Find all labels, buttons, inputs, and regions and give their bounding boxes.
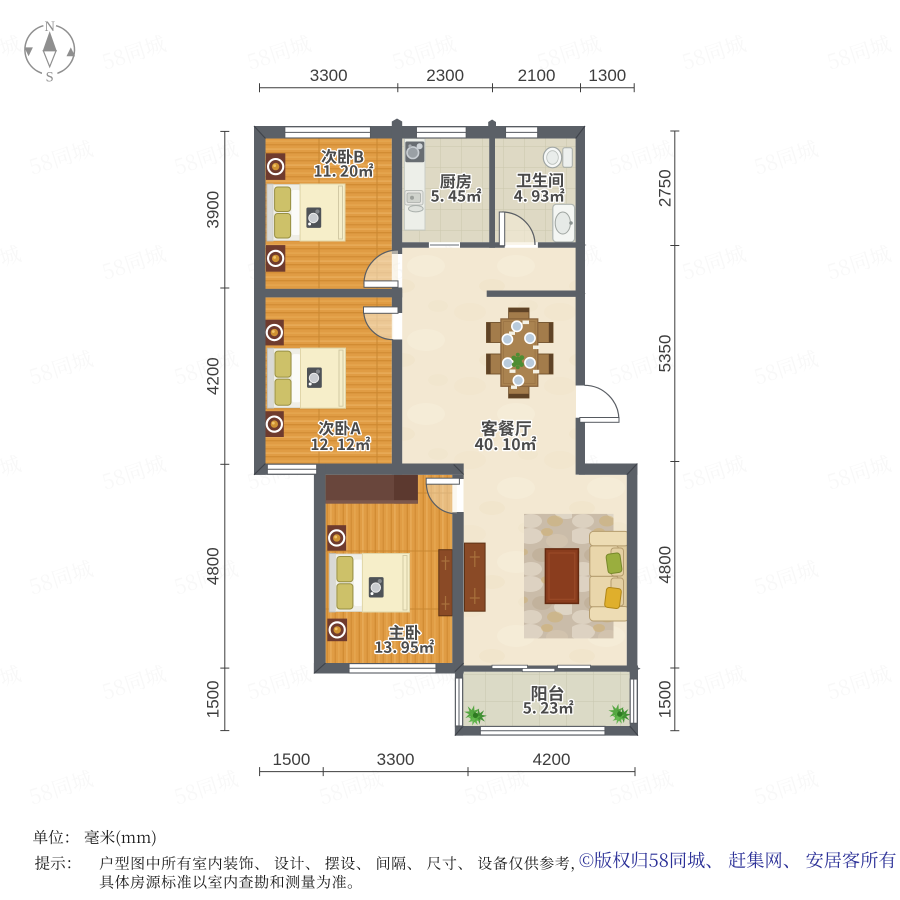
svg-text:3900: 3900 bbox=[203, 191, 222, 229]
svg-text:4200: 4200 bbox=[203, 357, 222, 395]
svg-text:2100: 2100 bbox=[518, 66, 556, 85]
svg-text:5350: 5350 bbox=[656, 335, 675, 373]
svg-text:3300: 3300 bbox=[310, 66, 348, 85]
svg-text:1500: 1500 bbox=[203, 680, 222, 718]
svg-text:1500: 1500 bbox=[656, 680, 675, 718]
svg-text:4200: 4200 bbox=[533, 750, 571, 769]
svg-text:3300: 3300 bbox=[377, 750, 415, 769]
svg-text:1500: 1500 bbox=[272, 750, 310, 769]
svg-text:1300: 1300 bbox=[588, 66, 626, 85]
svg-text:4800: 4800 bbox=[203, 547, 222, 585]
svg-text:S: S bbox=[46, 70, 54, 86]
svg-text:4800: 4800 bbox=[656, 546, 675, 584]
svg-text:2750: 2750 bbox=[656, 169, 675, 207]
svg-text:2300: 2300 bbox=[426, 66, 464, 85]
svg-text:N: N bbox=[44, 19, 55, 35]
